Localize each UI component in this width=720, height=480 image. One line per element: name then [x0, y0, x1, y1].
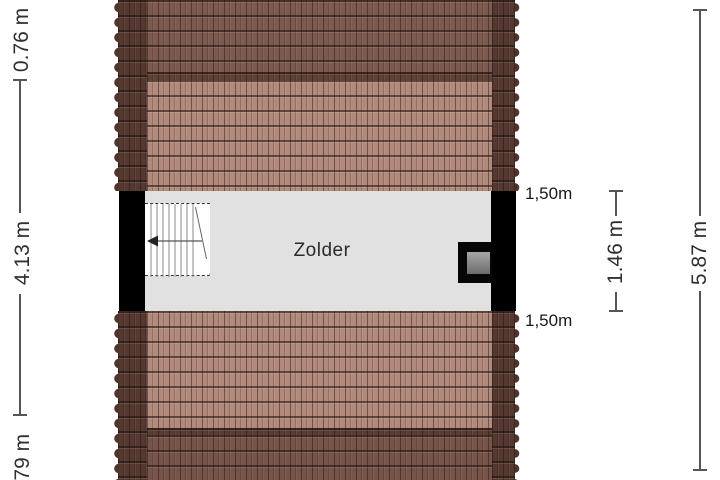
roof-upper-slope [118, 0, 515, 191]
wall-height-label-top: 1,50m [525, 184, 572, 204]
dimension-line [699, 11, 701, 216]
roof-edge-scallops-top-left [112, 0, 119, 191]
roof-lower-field [147, 311, 492, 428]
left-wall [119, 191, 145, 311]
staircase [145, 203, 210, 276]
dimension-line [699, 291, 701, 469]
roof-lower-slope [118, 311, 515, 480]
stair-arrow-icon [147, 236, 158, 247]
dimension-label-left-top: 0.76 m [10, 8, 34, 72]
floor-plan: Zolder 1,50m 1,50m 0.76 m 4.13 m 0.79 m … [0, 0, 720, 480]
window-pane [467, 252, 490, 274]
roof-lower-band [147, 435, 492, 480]
dimension-tick [609, 310, 623, 312]
roof-window-icon [458, 242, 492, 283]
dimension-line [615, 292, 617, 310]
room-label: Zolder [294, 240, 351, 262]
roof-edge-scallops-top-right [515, 0, 520, 191]
staircase-drawing [145, 204, 210, 277]
wall-height-label-bottom: 1,50m [525, 311, 572, 331]
right-wall [491, 191, 516, 311]
dimension-label-right-inner: 1.46 m [604, 220, 628, 284]
dimension-label-left-bottom: 0.79 m [11, 434, 35, 480]
dimension-tick [693, 469, 707, 471]
dimension-tick [13, 414, 27, 416]
dimension-label-left-middle: 4.13 m [11, 221, 35, 285]
roof-ridge-line [147, 72, 492, 80]
roof-upper-field [147, 80, 492, 191]
dimension-label-right-outer: 5.87 m [688, 221, 712, 285]
roof-edge-scallops-bottom-left [112, 311, 119, 480]
dimension-line [19, 294, 21, 414]
dimension-line [19, 81, 21, 213]
roof-eave-line [147, 428, 492, 435]
roof-edge-scallops-bottom-right [515, 311, 520, 480]
roof-upper-band [147, 0, 492, 72]
dimension-line [615, 192, 617, 216]
